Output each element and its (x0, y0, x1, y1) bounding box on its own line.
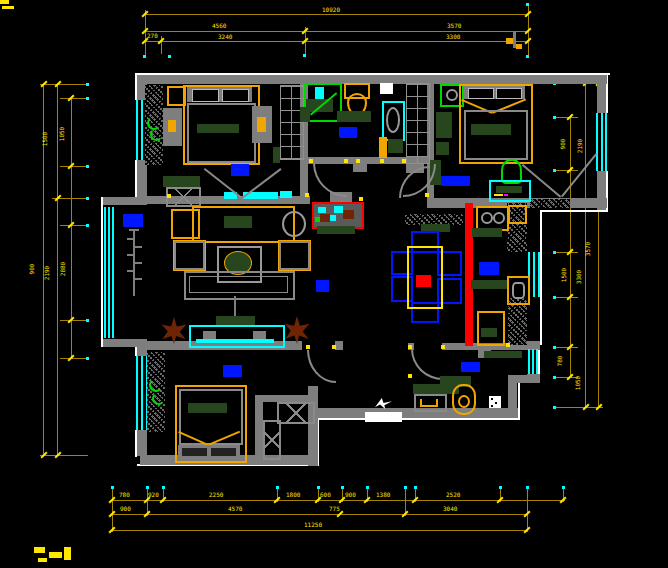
master-mattress (187, 103, 256, 163)
decor-item (329, 215, 336, 221)
dim-stub (60, 98, 88, 99)
hinge-dot (332, 345, 336, 349)
coat-rack-branch (127, 238, 135, 240)
exterior-trim (101, 197, 103, 347)
window-glass-line (141, 100, 143, 160)
witness-dot (303, 54, 306, 57)
desk-item (494, 194, 503, 196)
room-label-kitchen (479, 262, 499, 275)
witness-dot (162, 486, 165, 489)
exterior-trim (540, 210, 608, 212)
bath-sink (382, 101, 405, 141)
coat-rack-branch (127, 270, 135, 272)
hinge-dot (309, 159, 313, 163)
witness-dot (526, 55, 529, 58)
hinge-dot (305, 193, 309, 197)
master-wardrobe (280, 85, 304, 160)
window-glass-line (601, 113, 603, 171)
tv-cabinet-shelf (196, 339, 274, 343)
witness-dot (86, 97, 89, 100)
witness-dot (553, 296, 556, 299)
hinge-dot (167, 194, 171, 198)
bath-sink-basin (386, 107, 400, 133)
wall-stub-hall (353, 162, 367, 172)
corner-mark (64, 547, 71, 560)
window-glass-line (596, 113, 598, 171)
window-east-bedroom2 (595, 113, 608, 171)
decor-item (320, 214, 330, 222)
master-bench (163, 176, 200, 187)
window-glass-line (136, 356, 138, 430)
study-chair (452, 384, 476, 415)
dim-label: 900 (560, 139, 566, 150)
dim-label: 3570 (585, 242, 591, 256)
window-glass-line (536, 349, 538, 374)
desk-item (504, 194, 508, 196)
wall-study-east-pier-bot (527, 374, 540, 383)
dim-label: 780 (119, 492, 130, 498)
kitchen-sink (507, 276, 530, 305)
plant-squiggle (150, 128, 163, 141)
window-glass-line (532, 349, 534, 374)
dim-label: 10920 (322, 7, 340, 13)
dim-stub (40, 455, 88, 456)
dim-stub (553, 117, 578, 118)
dim-label: 2190 (577, 139, 583, 153)
wall-bay-step-top (103, 197, 147, 205)
hinge-dot (425, 193, 429, 197)
bed2-wardrobe-green (436, 112, 452, 138)
sink-basin (512, 282, 525, 299)
dim-stub (60, 320, 88, 321)
dim-label: 11250 (304, 522, 322, 528)
coat-rack-branch (134, 278, 142, 280)
title-block (365, 412, 402, 422)
decor-item (334, 206, 343, 213)
witness-dot (146, 486, 149, 489)
hinge-dot (356, 159, 360, 163)
witness-dot (526, 3, 529, 6)
tv-cabinet-item (203, 331, 216, 339)
bed3-wardrobe-x-v (263, 420, 281, 460)
window-glass-line (136, 100, 138, 160)
dim-stub (40, 84, 88, 85)
bath-vanity (337, 111, 371, 122)
coat-rack-top (129, 229, 139, 231)
exterior-trim (317, 418, 520, 420)
dim-label: 1050 (575, 376, 581, 390)
bed2-pillow (471, 124, 511, 135)
dim-tick (523, 526, 530, 533)
master-nightstand-glyph (257, 117, 266, 132)
washing-machine (380, 83, 393, 94)
kitchen-counter (472, 228, 502, 237)
decor-item (315, 217, 320, 222)
kitchen-counter (471, 280, 507, 289)
dim-line-top-1 (145, 14, 528, 15)
witness-dot (414, 486, 417, 489)
outlet-dot (491, 405, 493, 407)
dim-label: 920 (148, 492, 159, 498)
coat-rack-branch (134, 262, 142, 264)
window-glass-line (533, 252, 535, 297)
decor-item (318, 207, 326, 213)
sliding-door-panel (280, 191, 292, 198)
witness-dot (404, 486, 407, 489)
sectional-sofa-inner (189, 276, 288, 293)
room-label-bedroom2 (441, 176, 470, 186)
wall-study-east-pier-top (527, 341, 540, 349)
dining-table-runner (416, 275, 431, 287)
dim-stub (553, 347, 578, 348)
witness-dot (366, 486, 369, 489)
fridge-shelf (481, 328, 497, 337)
kitchen-fridge (477, 311, 505, 346)
dim-stub (527, 486, 528, 532)
exterior-trim (540, 210, 542, 345)
floor-plan-canvas: 10920 4560 3570 270 3240 3300 1500 1050 … (0, 0, 668, 568)
wall-pier-hatched (530, 199, 570, 208)
witness-dot (341, 486, 344, 489)
sofa-cushion (224, 216, 252, 228)
hinge-dot (441, 345, 445, 349)
wall-living-south-stub (335, 341, 343, 350)
master-headboard-panel (192, 89, 219, 102)
exterior-trim (518, 381, 520, 420)
dim-line-bottom-B (112, 514, 527, 515)
room-label-study (461, 362, 480, 372)
dim-line-bottom-C (112, 530, 527, 531)
corner-mark (34, 547, 45, 553)
room-label-hall (340, 130, 357, 138)
dim-label: 4570 (228, 506, 242, 512)
bath-cabinet-strip (379, 137, 387, 158)
study-chair-seat (458, 395, 470, 408)
hinge-dot (380, 159, 384, 163)
witness-dot (553, 251, 556, 254)
witness-dot (143, 55, 146, 58)
tv-cabinet-item (253, 331, 266, 339)
hinge-dot (306, 345, 310, 349)
plant-squiggle (152, 392, 165, 405)
dim-stub (553, 252, 578, 253)
bath-cabinet-green (388, 139, 403, 153)
bay-window-glass-line (104, 207, 106, 338)
wall-study-step-v (508, 383, 517, 410)
elevation-marker (516, 44, 522, 49)
dim-stub (553, 297, 578, 298)
room-label-bedroom3 (223, 365, 242, 377)
witness-dot (526, 486, 529, 489)
stove-burner (481, 212, 493, 224)
hinge-dot (408, 374, 412, 378)
dim-label: 3300 (576, 270, 582, 284)
master-table-x (166, 187, 201, 207)
plant-squiggle (149, 378, 163, 392)
hinge-dot (344, 159, 348, 163)
kitchen-corner-appliance (508, 205, 527, 224)
bed2-wardrobe-green (436, 142, 449, 155)
dim-label: 900 (29, 264, 35, 275)
corner-mark (0, 0, 9, 4)
dim-label: 900 (345, 492, 356, 498)
hinge-dot (402, 159, 406, 163)
master-pillow (197, 124, 239, 133)
witness-dot (111, 486, 114, 489)
desk-top-item (496, 186, 522, 193)
dim-label: 3240 (218, 34, 232, 40)
dim-label: 2190 (44, 266, 50, 280)
witness-dot (276, 486, 279, 489)
room-label-living2 (316, 280, 329, 292)
corner-mark (38, 558, 47, 562)
plant-pot (161, 317, 187, 344)
dim-tick (559, 496, 566, 503)
plant-pot (284, 316, 310, 344)
dim-label: 1500 (42, 132, 48, 146)
bed3-wardrobe-x (277, 402, 315, 424)
bed2-headboard-panel (496, 88, 522, 99)
dim-label: 1380 (376, 492, 390, 498)
witness-dot (86, 224, 89, 227)
door-arc (313, 163, 347, 197)
bed3-footboard-panel (182, 448, 207, 456)
bath-shelf-cabinet (406, 83, 430, 164)
window-glass-line (605, 113, 607, 171)
witness-dot (86, 357, 89, 360)
hall-decor-cabinet (312, 202, 364, 229)
kitchen-east-pier-hatched (508, 298, 527, 345)
witness-dot (553, 169, 556, 172)
stove-burner (493, 212, 505, 224)
outlet-dot (495, 402, 497, 404)
dim-label: 3040 (443, 506, 457, 512)
corner-mark (2, 6, 14, 9)
dim-label: 2880 (60, 262, 66, 276)
window-glass-line (141, 356, 143, 430)
decor-item (343, 210, 354, 219)
coat-rack-branch (134, 246, 142, 248)
dim-label: 900 (120, 506, 131, 512)
witness-dot (86, 83, 89, 86)
door-arc (307, 350, 336, 383)
outlet-dot (491, 398, 493, 400)
bed3-pillow (188, 403, 227, 413)
study-side-table-inner (420, 399, 438, 407)
hall-shelf (317, 226, 355, 234)
master-cabinet-green (273, 147, 280, 163)
tv-set (216, 316, 255, 325)
dim-label: 1800 (286, 492, 300, 498)
bed2-desk (489, 180, 531, 202)
hinge-dot (359, 197, 363, 201)
witness-dot (86, 165, 89, 168)
master-headboard-panel (222, 89, 249, 102)
dim-label: 4560 (212, 23, 226, 29)
dim-label: 780 (557, 356, 563, 367)
hinge-dot (506, 343, 510, 347)
witness-dot (86, 319, 89, 322)
study-counter (484, 351, 522, 358)
dim-label: 600 (320, 492, 331, 498)
side-table-right (279, 241, 310, 270)
dim-label: 775 (329, 506, 340, 512)
corner-mark (49, 552, 62, 558)
witness-dot (553, 116, 556, 119)
dim-line-right-3 (570, 117, 571, 377)
revision-line-red (465, 203, 473, 346)
dim-label: 270 (147, 33, 158, 39)
bay-window-glass-line (112, 207, 114, 338)
bed2-mattress (464, 110, 528, 160)
witness-dot (317, 486, 320, 489)
witness-dot (553, 346, 556, 349)
bed2-headboard-panel (468, 88, 494, 99)
bed3-wardrobe-bar-v (255, 402, 263, 458)
door-arc (411, 349, 443, 380)
bay-window-glass-line (108, 207, 110, 338)
dim-label: 3300 (446, 34, 460, 40)
dim-stub (553, 170, 578, 171)
bed3-footboard-panel (211, 448, 236, 456)
dim-label: 2520 (446, 492, 460, 498)
side-table-left (174, 241, 205, 270)
witness-dot (553, 406, 556, 409)
coat-rack-branch (127, 254, 135, 256)
study-side-table (414, 394, 447, 412)
dim-extension-line (145, 10, 146, 57)
window-glass-line (538, 252, 540, 297)
dim-stub (60, 166, 88, 167)
outlet-box (489, 396, 501, 408)
dim-label: 1050 (59, 127, 65, 141)
bed3-wardrobe-bar (255, 395, 315, 402)
room-label-master (231, 164, 249, 176)
witness-dot (499, 486, 502, 489)
dim-line-top-2 (145, 31, 528, 32)
wall-top (137, 75, 607, 84)
dim-stub (112, 486, 113, 532)
bath-counter-left (300, 107, 310, 122)
tv-cabinet (189, 325, 285, 348)
witness-dot (86, 197, 89, 200)
hinge-dot (408, 345, 412, 349)
fan-hub (446, 89, 458, 101)
dim-label: 1500 (561, 268, 567, 282)
dim-stub (60, 358, 88, 359)
dim-label: 2250 (209, 492, 223, 498)
sofa-side-wheel (282, 211, 306, 237)
dim-stub (60, 225, 88, 226)
elevation-marker (506, 38, 513, 44)
dim-label: 3570 (447, 23, 461, 29)
witness-dot (168, 55, 171, 58)
witness-dot (562, 486, 565, 489)
witness-dot (553, 376, 556, 379)
master-dresser-knob (168, 120, 176, 132)
bed2-curtain-line (561, 153, 597, 197)
window-glass-line (528, 349, 530, 374)
dim-line-top-3 (145, 41, 528, 42)
room-label-living (123, 214, 143, 227)
